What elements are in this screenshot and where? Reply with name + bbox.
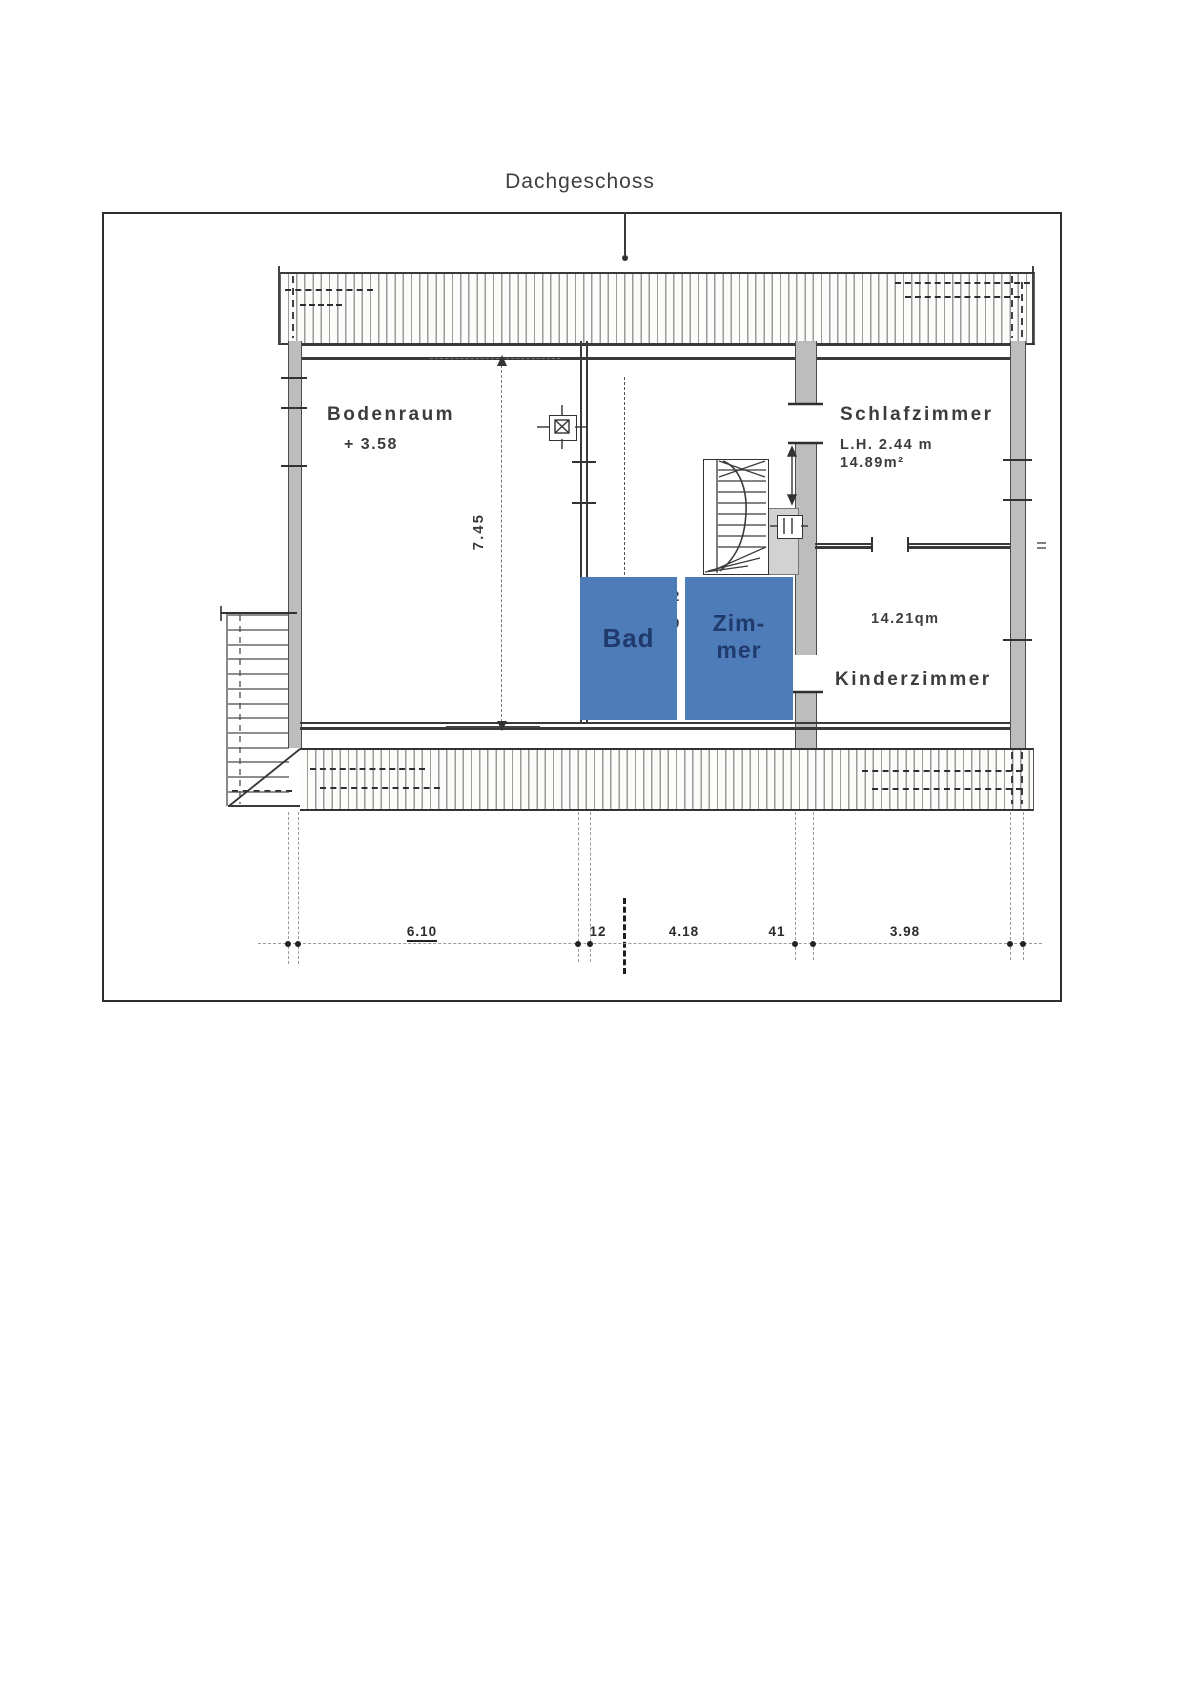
- center-axis-line: [624, 377, 625, 575]
- vertical-dimension-label: 7.45: [470, 513, 487, 550]
- extension-line-2: [298, 812, 299, 964]
- center-axis-top-dot: [622, 255, 628, 261]
- kinderzimmer-area-label: 14.21qm: [871, 611, 940, 627]
- dim-label-610: 6.10: [396, 924, 448, 939]
- dim-label-12: 12: [584, 924, 612, 939]
- extension-line-3: [578, 812, 579, 962]
- vertical-dimension-line: [501, 360, 502, 727]
- divider-wall-right-thin: [908, 543, 1010, 545]
- bottom-wall-line-thin: [300, 722, 1010, 724]
- exterior-wall-left: [288, 341, 302, 748]
- divider-wall-left-thick: [815, 546, 873, 549]
- ceiling-height-label: L.H. 2.44 m: [840, 437, 933, 453]
- bad-overlay-label: Bad: [580, 623, 677, 654]
- zimmer-overlay-label-line2: mer: [685, 637, 793, 664]
- roof-dash-left-2: [300, 304, 342, 306]
- stairwell: [703, 459, 769, 575]
- dim-label-398: 3.98: [879, 924, 931, 939]
- flue-symbol: [777, 515, 803, 539]
- roof-dash-right-2: [905, 296, 1020, 298]
- floor-dash-left-2: [320, 787, 440, 789]
- floor-dash-right-2: [872, 788, 1022, 790]
- roof-dash-left-1: [285, 289, 373, 291]
- center-axis-bottom-mark: [623, 898, 626, 974]
- center-axis-top-mark: [624, 212, 626, 255]
- divider-wall-right-thick: [908, 546, 1010, 549]
- bottom-floor-band: [300, 748, 1034, 811]
- dimension-line: [258, 943, 1042, 944]
- page-title: Dachgeschoss: [455, 170, 705, 194]
- column-symbol: [549, 415, 577, 441]
- extension-line-8: [1023, 812, 1024, 960]
- zimmer-overlay-label-line1: Zim-: [685, 610, 793, 637]
- floor-dash-left-1: [310, 768, 425, 770]
- bottom-band-edge-left: [228, 805, 300, 807]
- room-label-schlafzimmer: Schlafzimmer: [840, 404, 994, 426]
- floorplan-page: Dachgeschoss 7.45 Boden: [0, 0, 1189, 1684]
- floor-dash-right-1: [862, 770, 1022, 772]
- divider-wall-left-thin: [815, 543, 873, 545]
- dim-label-610-text: 6.10: [407, 924, 437, 942]
- exterior-wall-right: [1010, 341, 1026, 748]
- extension-line-5: [795, 812, 796, 960]
- extension-line-7: [1010, 812, 1011, 960]
- dim-label-418: 4.18: [658, 924, 710, 939]
- floor-level-label: + 3.58: [344, 436, 398, 454]
- extension-line-4: [590, 812, 591, 962]
- stair-wall-segment-lower: [795, 692, 817, 748]
- bottom-wall-line-thick: [300, 727, 1010, 730]
- extension-line-1: [288, 812, 289, 964]
- upper-wall-line-thick: [298, 357, 1010, 360]
- room-label-bodenraum: Bodenraum: [327, 404, 455, 426]
- room-label-kinderzimmer: Kinderzimmer: [835, 669, 992, 691]
- schlafzimmer-area-label: 14.89m²: [840, 455, 905, 471]
- roof-dash-right-1: [895, 282, 1030, 284]
- dim-label-41: 41: [763, 924, 791, 939]
- stair-wall-segment-upper: [795, 341, 817, 404]
- upper-wall-line-thin: [298, 344, 1010, 346]
- vertical-dim-top-tick: [430, 358, 560, 359]
- vertical-dim-bottom-tick: [446, 726, 540, 728]
- floor-dash-left-3: [232, 790, 292, 792]
- extension-line-6: [813, 812, 814, 960]
